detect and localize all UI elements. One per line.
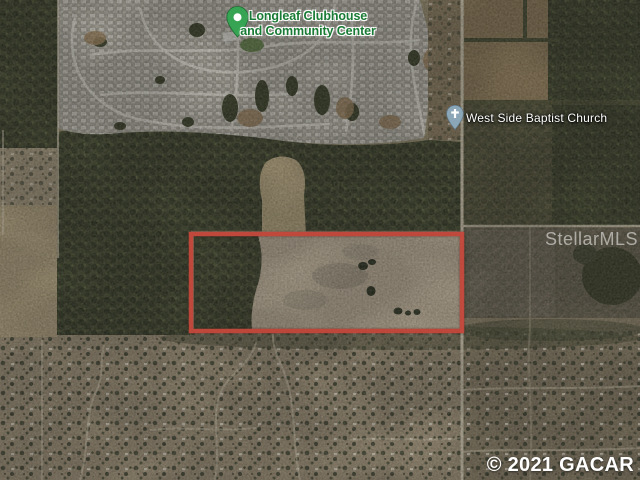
church-pin-icon[interactable]	[446, 105, 464, 130]
clubhouse-label: Longleaf Clubhouse and Community Center	[240, 9, 376, 39]
church-label: West Side Baptist Church	[466, 111, 607, 125]
satellite-map[interactable]: Longleaf Clubhouse and Community Center …	[0, 0, 640, 480]
copyright-watermark: © 2021 GACAR	[487, 454, 634, 477]
mls-watermark: StellarMLS	[545, 229, 638, 250]
clubhouse-label-line2: and Community Center	[240, 24, 376, 39]
clubhouse-label-line1: Longleaf Clubhouse	[240, 9, 376, 24]
